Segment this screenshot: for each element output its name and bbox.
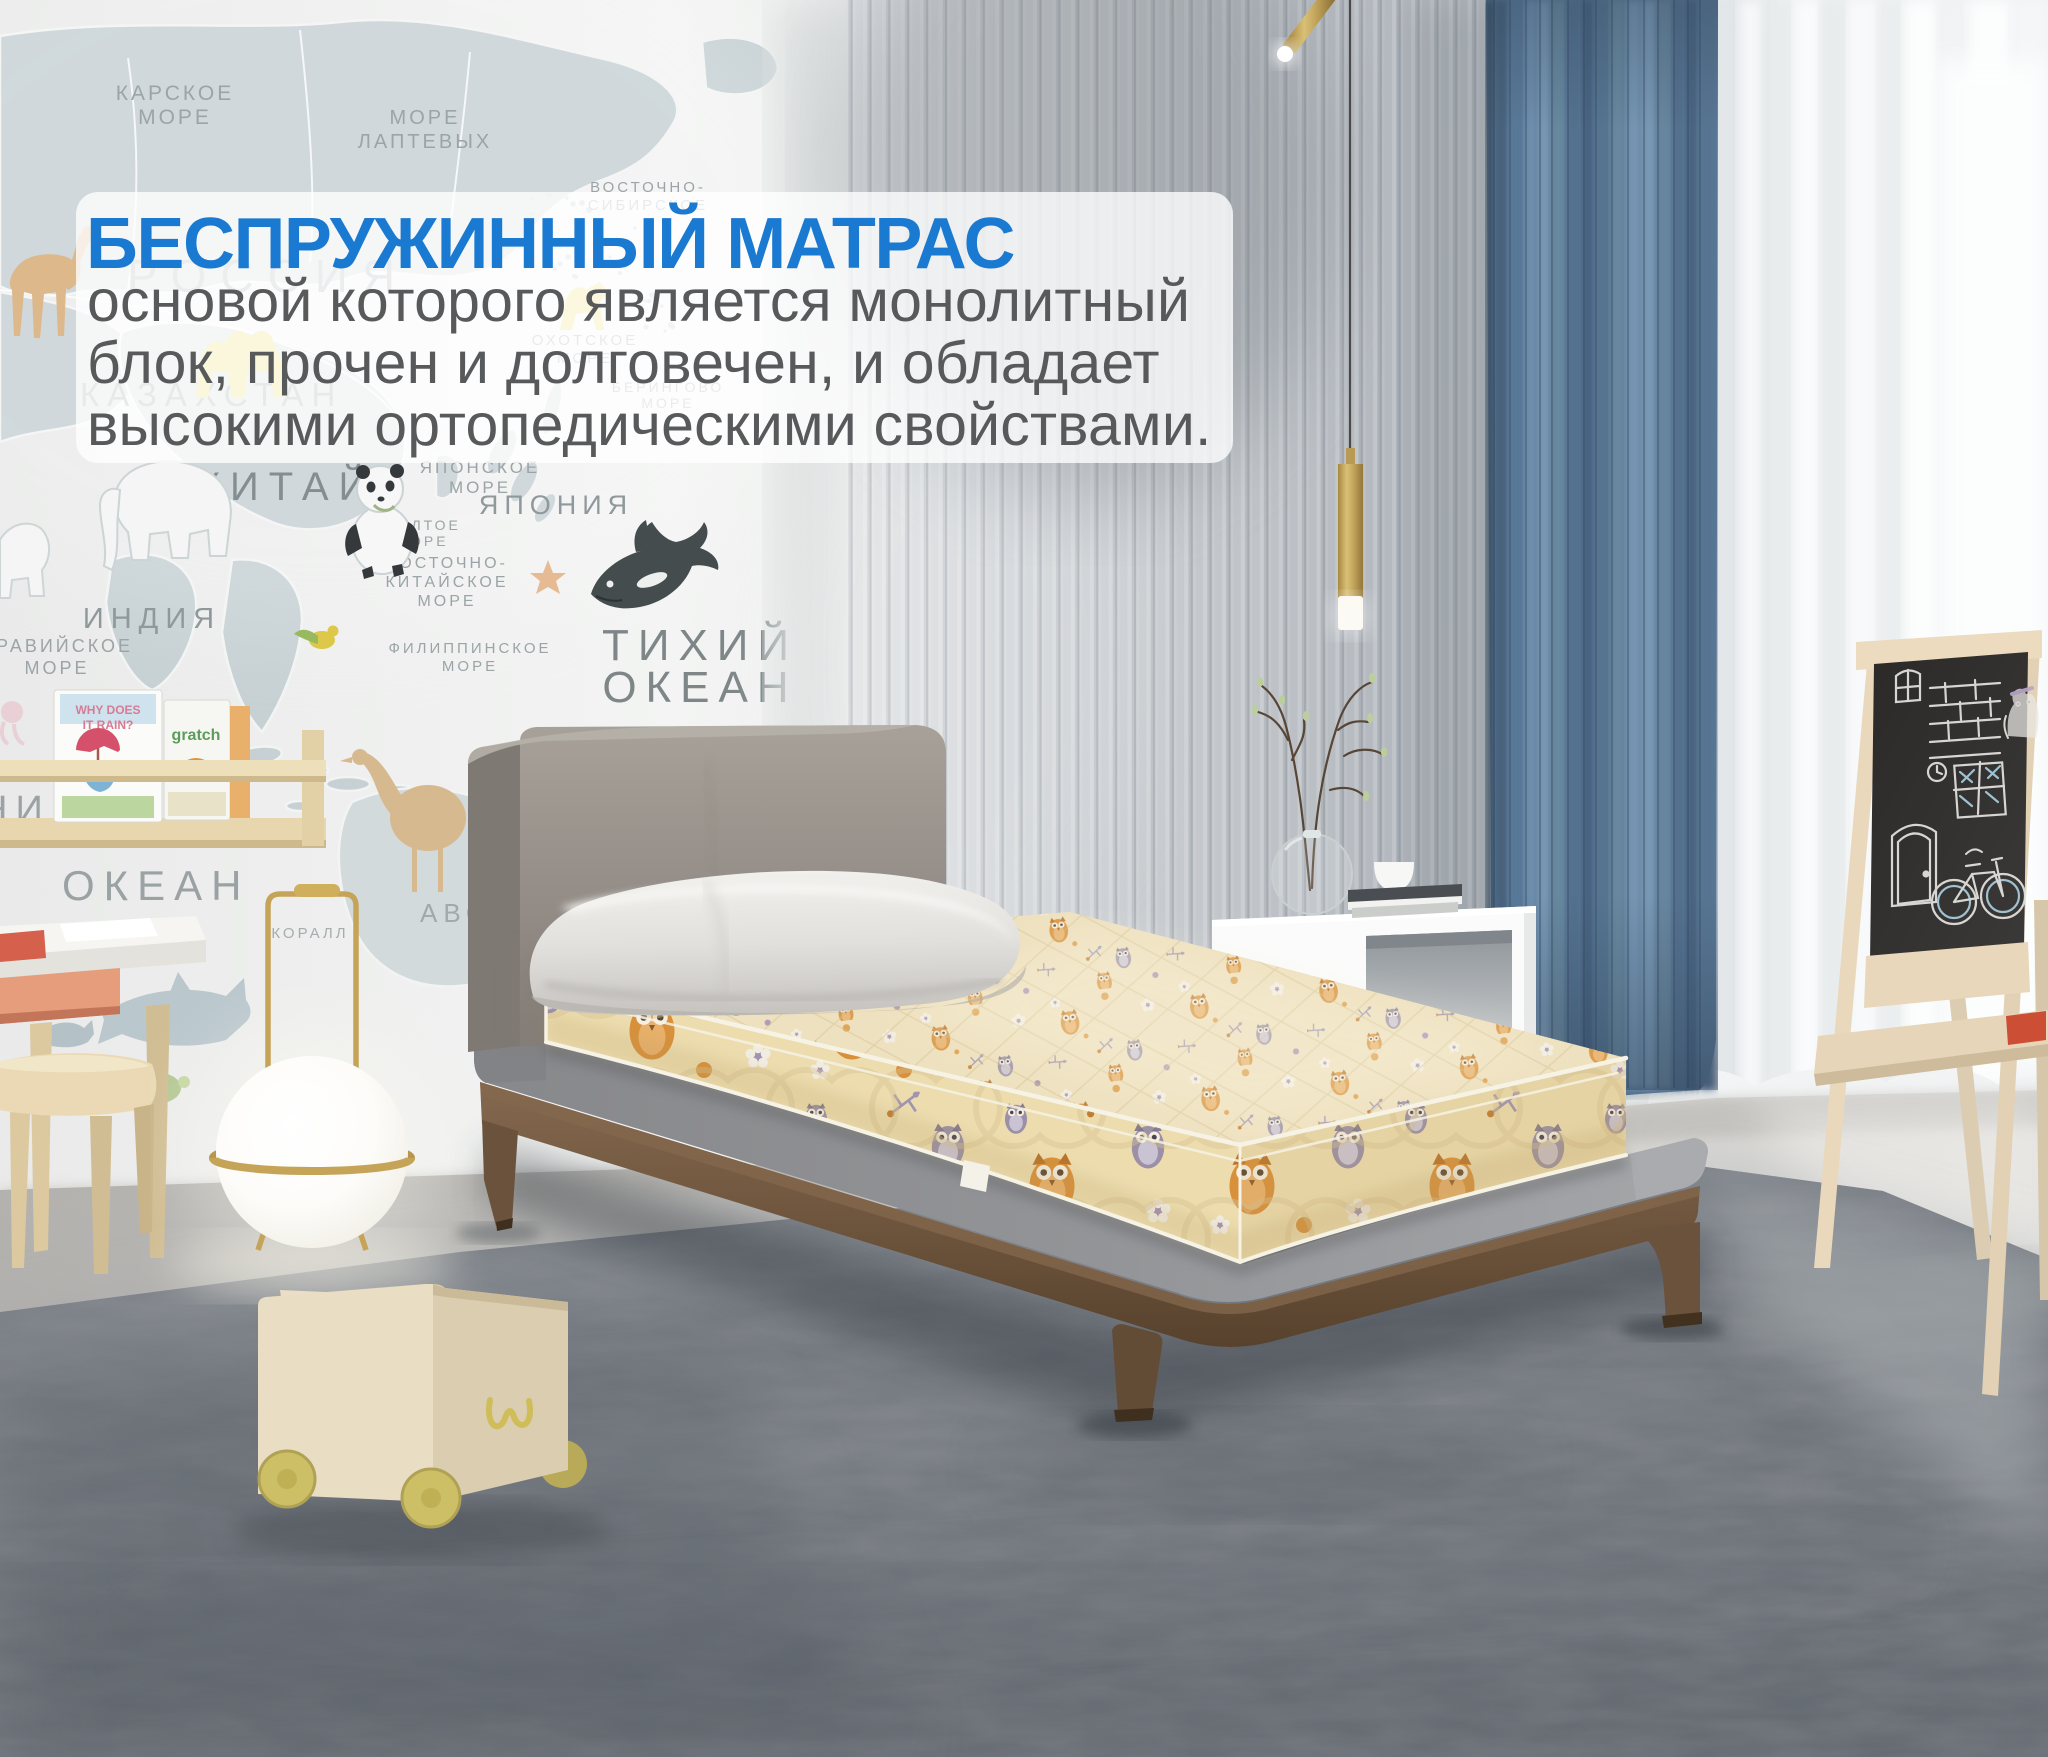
svg-text:gratch: gratch	[172, 727, 221, 744]
svg-text:КИТАЙСКОЕ: КИТАЙСКОЕ	[385, 572, 508, 591]
svg-text:МОРЕ: МОРЕ	[390, 107, 461, 129]
svg-text:ФИЛИППИНСКОЕ: ФИЛИППИНСКОЕ	[388, 640, 551, 657]
svg-text:WHY DOES: WHY DOES	[75, 703, 140, 717]
svg-text:МОРЕ: МОРЕ	[138, 106, 212, 129]
svg-text:ОКЕАН: ОКЕАН	[62, 862, 251, 909]
svg-text:ОКЕАН: ОКЕАН	[602, 663, 797, 712]
svg-text:КОРАЛЛ: КОРАЛЛ	[271, 925, 348, 942]
svg-text:КАРСКОЕ: КАРСКОЕ	[116, 82, 235, 105]
svg-text:МОРЕ: МОРЕ	[442, 658, 498, 675]
svg-text:ЛАПТЕВЫХ: ЛАПТЕВЫХ	[358, 131, 493, 153]
svg-text:МОРЕ: МОРЕ	[417, 593, 476, 610]
svg-text:МОРЕ: МОРЕ	[24, 658, 89, 678]
svg-text:АРАВИЙСКОЕ: АРАВИЙСКОЕ	[0, 635, 133, 656]
svg-text:ИНДИЯ: ИНДИЯ	[83, 603, 221, 635]
svg-text:МОРЕ: МОРЕ	[449, 478, 511, 497]
